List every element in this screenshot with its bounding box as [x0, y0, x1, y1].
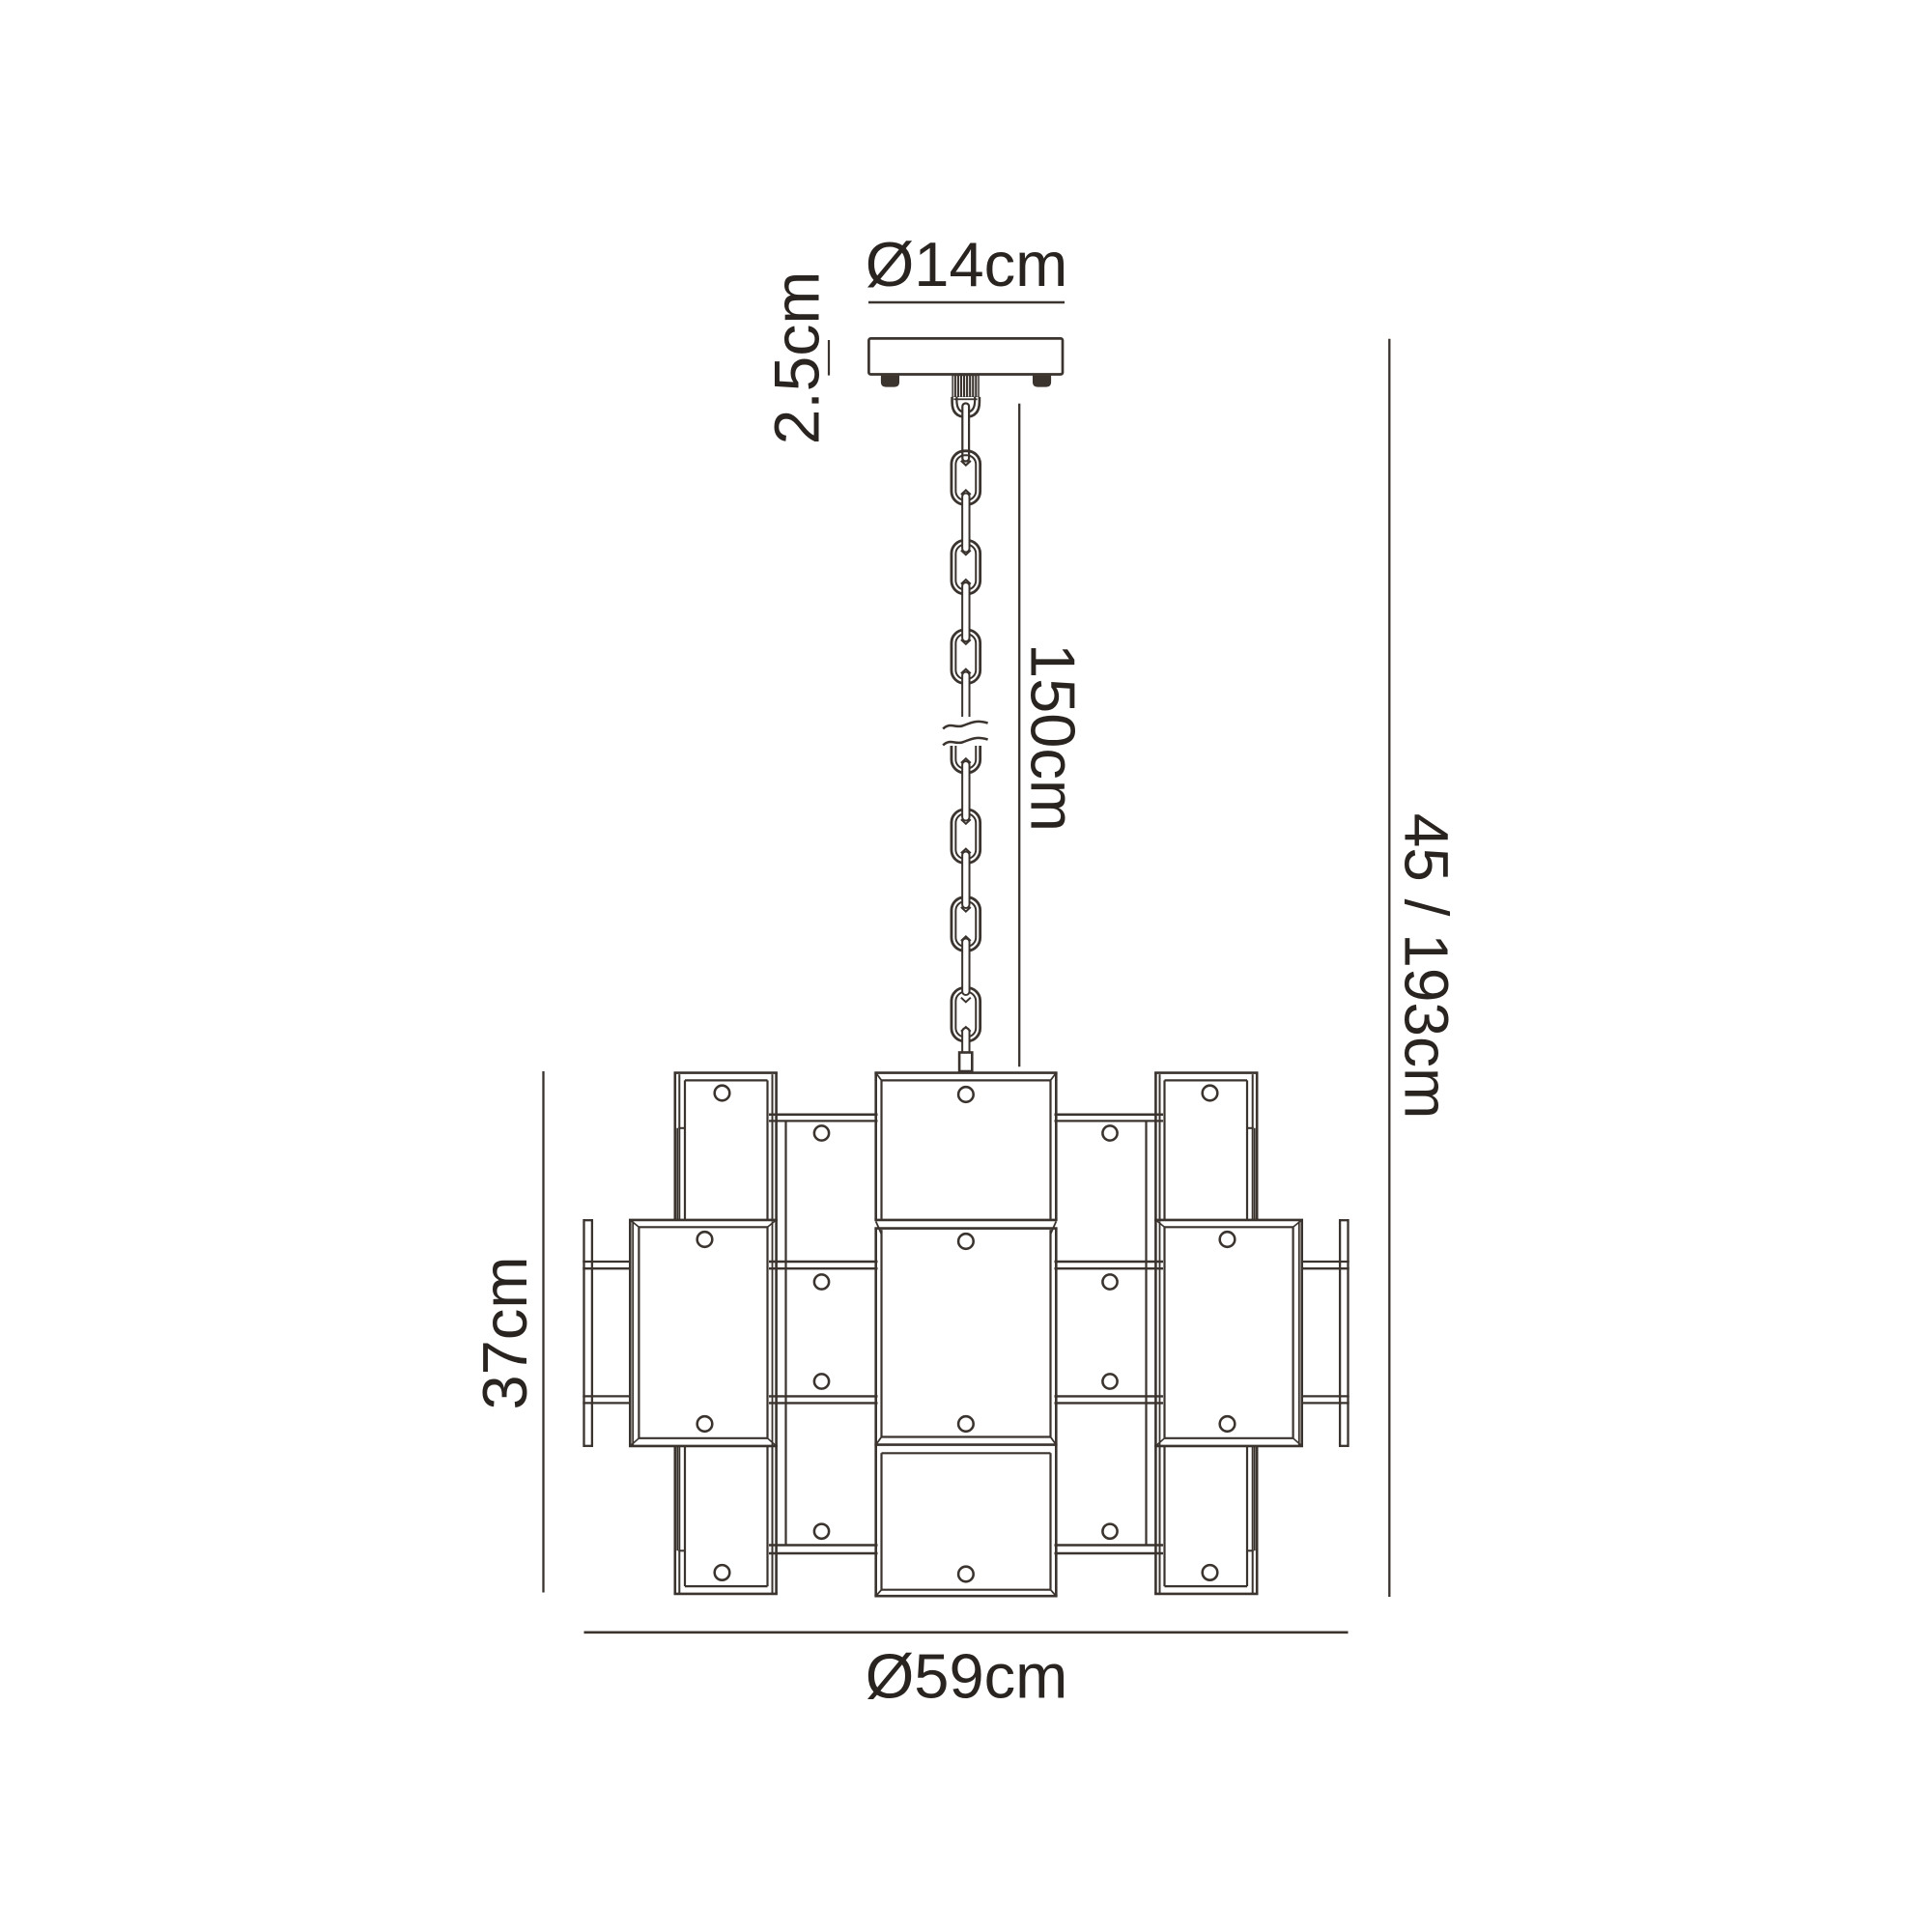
svg-text:45 / 193cm: 45 / 193cm	[1391, 813, 1461, 1120]
svg-text:37cm: 37cm	[469, 1257, 540, 1410]
svg-text:150cm: 150cm	[1017, 643, 1088, 832]
svg-text:Ø59cm: Ø59cm	[866, 1641, 1068, 1712]
svg-text:2.5cm: 2.5cm	[760, 271, 832, 445]
svg-text:Ø14cm: Ø14cm	[866, 229, 1068, 299]
